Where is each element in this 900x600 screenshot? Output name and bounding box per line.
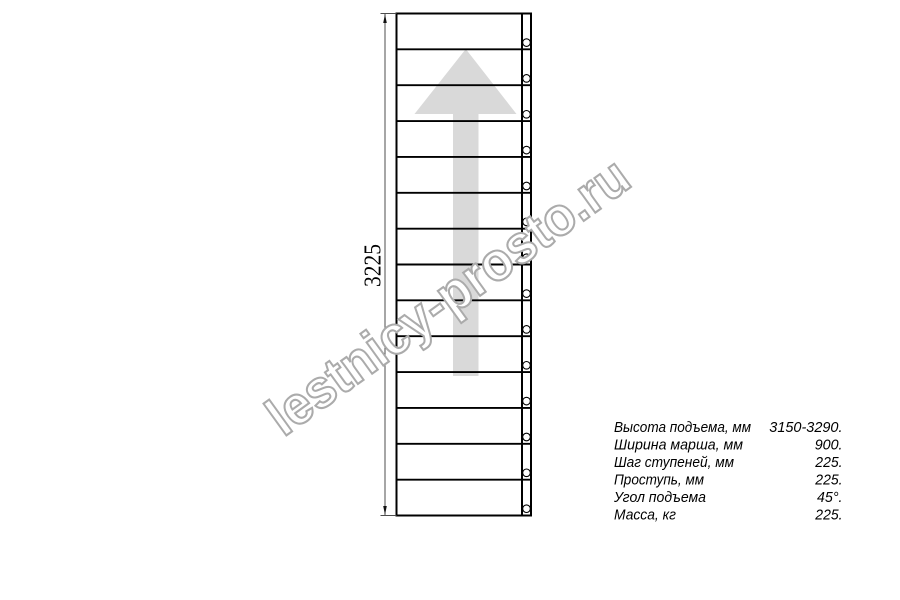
svg-text:900.: 900. bbox=[815, 436, 843, 453]
svg-text:Проступь, мм: Проступь, мм bbox=[614, 471, 704, 488]
svg-text:Ширина марша, мм: Ширина марша, мм bbox=[614, 436, 743, 453]
svg-text:Угол подъема: Угол подъема bbox=[613, 489, 706, 506]
svg-text:Шаг ступеней, мм: Шаг ступеней, мм bbox=[614, 454, 734, 471]
svg-text:Высота подъема, мм: Высота подъема, мм bbox=[614, 419, 751, 436]
svg-text:225.: 225. bbox=[814, 506, 842, 523]
svg-text:225.: 225. bbox=[814, 454, 842, 471]
svg-text:Масса, кг: Масса, кг bbox=[614, 506, 677, 523]
svg-text:lestnicy-prosto.ru: lestnicy-prosto.ru bbox=[255, 146, 640, 447]
svg-text:225.: 225. bbox=[814, 471, 842, 488]
svg-text:3150-3290.: 3150-3290. bbox=[769, 419, 842, 436]
svg-text:45°.: 45°. bbox=[817, 489, 843, 506]
svg-text:3225: 3225 bbox=[361, 244, 387, 287]
